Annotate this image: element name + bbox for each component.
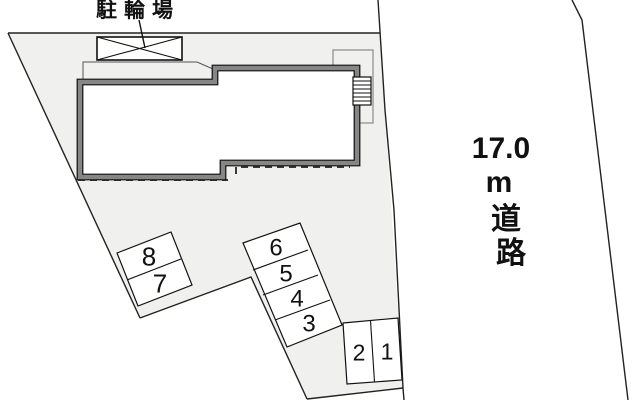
building-outline bbox=[80, 68, 357, 177]
road-label-line-3: 道 bbox=[491, 203, 521, 236]
road-far-edge bbox=[572, 0, 628, 400]
parking-space-number: 2 bbox=[353, 339, 366, 365]
road-label-line-2: m bbox=[486, 166, 513, 199]
parking-space-number: 7 bbox=[153, 268, 167, 298]
parking-space-number: 3 bbox=[302, 311, 315, 338]
road-width-label: 17.0 m 道 路 bbox=[472, 132, 530, 270]
parking-space-number: 8 bbox=[142, 241, 156, 271]
site-plan: 87654321 駐輪場 17.0 m 道 路 bbox=[0, 0, 640, 400]
road-label-line-4: 路 bbox=[496, 237, 527, 270]
road-label-line-1: 17.0 bbox=[472, 132, 530, 165]
parking-space-number: 4 bbox=[290, 286, 303, 313]
site-plan-drawing: 87654321 駐輪場 17.0 m 道 路 bbox=[0, 0, 640, 400]
parking-space-number: 6 bbox=[269, 235, 282, 262]
bike-parking-label: 駐輪場 bbox=[96, 0, 180, 22]
parking-block-2-1: 21 bbox=[343, 318, 402, 384]
parking-space-number: 1 bbox=[381, 338, 394, 364]
parking-space-number: 5 bbox=[279, 261, 292, 288]
